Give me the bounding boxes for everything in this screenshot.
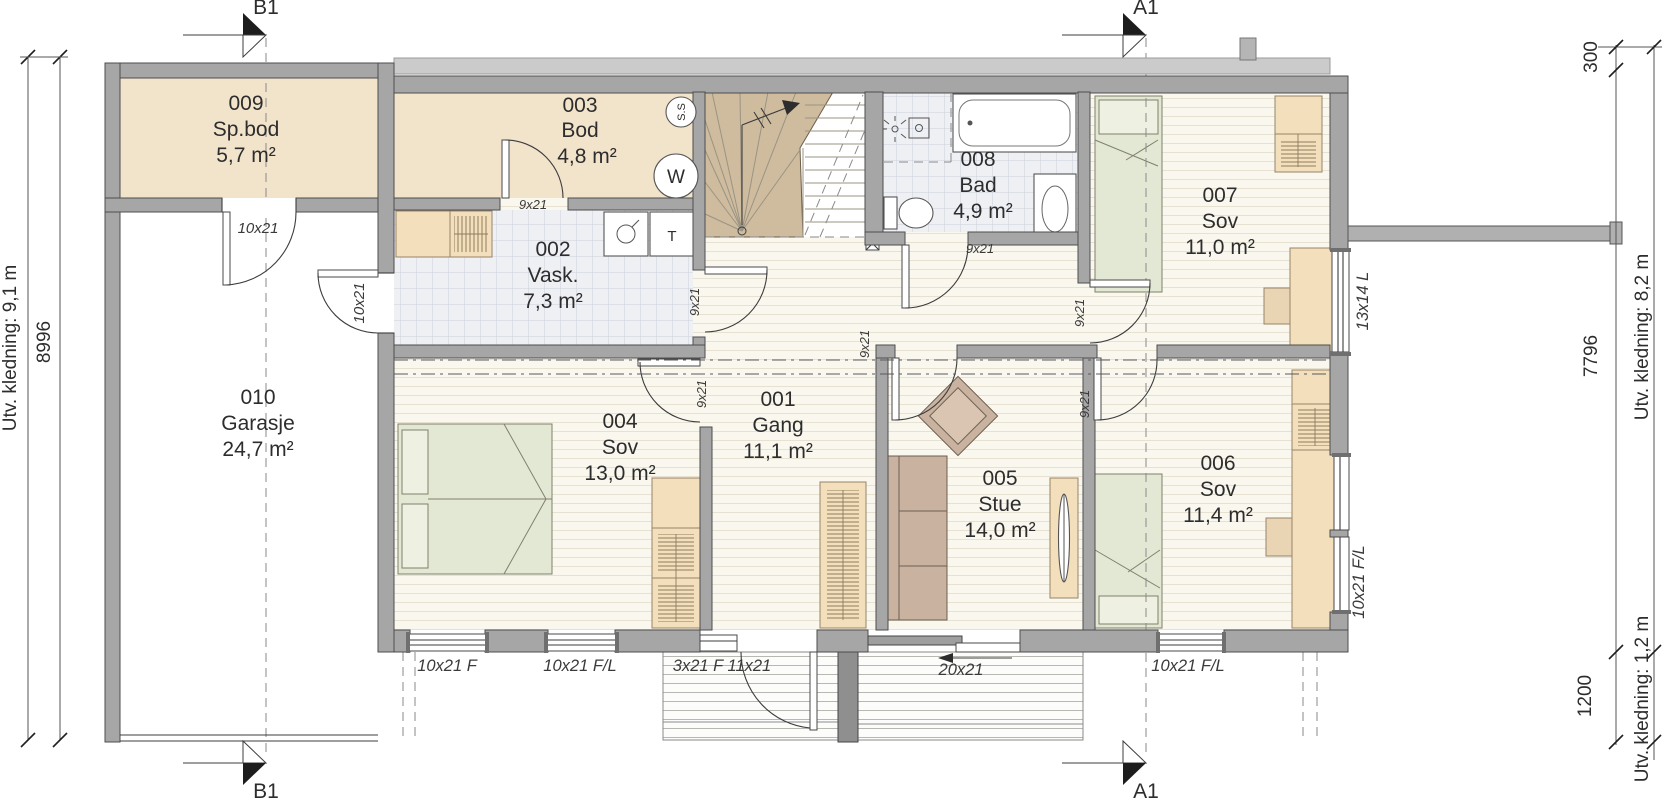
dryer: T: [650, 212, 694, 256]
dim-left: Utv. kledning: 9,1 m 8996: [0, 50, 68, 747]
svg-text:5,7 m²: 5,7 m²: [216, 144, 276, 167]
entrance-sidelight: [700, 635, 737, 651]
svg-text:Sov: Sov: [602, 436, 639, 459]
svg-text:Bod: Bod: [561, 119, 598, 142]
svg-text:003: 003: [562, 94, 597, 117]
dryer-label: T: [667, 228, 676, 245]
window-south-1: [406, 632, 489, 653]
svg-text:A1: A1: [1133, 0, 1159, 19]
wardrobe-gang: [820, 482, 866, 628]
door-label-garasje-vask: 10x21: [351, 283, 368, 324]
window-south-2: [544, 632, 619, 653]
bathtub: [953, 94, 1076, 152]
tv-bench-005: [1050, 478, 1078, 598]
window-east-bottom-2: [1332, 537, 1351, 614]
section-marker-a1-top: A1: [1062, 0, 1159, 57]
svg-text:002: 002: [535, 238, 570, 261]
svg-text:004: 004: [602, 410, 637, 433]
dresser-007: [1275, 96, 1322, 172]
svg-text:A1: A1: [1133, 780, 1159, 800]
svg-text:11,0 m²: 11,0 m²: [1185, 236, 1255, 259]
deck-post: [838, 646, 858, 742]
svg-text:Vask.: Vask.: [528, 264, 579, 287]
room-003-floor: [394, 92, 693, 198]
svg-text:Garasje: Garasje: [221, 412, 295, 435]
double-bed-004: [398, 424, 552, 574]
window-label-south-3: 10x21 F/L: [1151, 657, 1224, 675]
door-label-sov006: 9x21: [1077, 390, 1092, 418]
cabinet-002: [396, 211, 492, 257]
sliding-door-label: 20x21: [938, 661, 984, 679]
water-heater-label: W: [667, 167, 685, 188]
dim-right-cladding-lower: Utv. kledning: 1,2 m: [1632, 616, 1653, 783]
entrance-label: 3x21 F 11x21: [673, 657, 771, 675]
svg-text:010: 010: [240, 386, 275, 409]
window-label-east-bottom: 10x21 F/L: [1350, 545, 1368, 618]
dim-right: 300 7796 Utv. kledning: 8,2 m 1200 Utv. …: [1575, 40, 1662, 782]
ss-tank-label: S.S: [676, 103, 688, 121]
svg-text:005: 005: [982, 467, 1017, 490]
svg-text:11,1 m²: 11,1 m²: [743, 440, 813, 463]
svg-text:11,4 m²: 11,4 m²: [1183, 504, 1253, 527]
bed-006: [1095, 474, 1162, 628]
roof-overhang: [394, 58, 1330, 74]
svg-text:Sov: Sov: [1200, 478, 1237, 501]
window-east-top: [1330, 248, 1351, 356]
svg-text:B1: B1: [253, 0, 279, 19]
section-marker-a1-bottom: A1: [1062, 741, 1159, 800]
dim-left-cladding: Utv. kledning: 9,1 m: [0, 265, 21, 432]
svg-text:Sp.bod: Sp.bod: [213, 118, 280, 141]
svg-text:Gang: Gang: [752, 414, 803, 437]
door-label-bad: 9x21: [966, 241, 994, 256]
door-label-sov007: 9x21: [1072, 299, 1087, 327]
svg-text:001: 001: [760, 388, 795, 411]
svg-text:24,7 m²: 24,7 m²: [222, 438, 293, 461]
bed-007: [1095, 96, 1162, 292]
svg-text:4,8 m²: 4,8 m²: [557, 145, 617, 168]
toilet: [884, 197, 933, 229]
svg-text:4,9 m²: 4,9 m²: [953, 200, 1013, 223]
dim-right-offset: 300: [1581, 41, 1602, 73]
svg-text:007: 007: [1202, 184, 1237, 207]
svg-text:Sov: Sov: [1202, 210, 1239, 233]
dim-right-cladding-upper: Utv. kledning: 8,2 m: [1632, 254, 1653, 421]
window-label-south-1: 10x21 F: [417, 657, 478, 675]
svg-text:008: 008: [960, 148, 995, 171]
svg-text:Stue: Stue: [978, 493, 1021, 516]
door-label-sov004: 9x21: [694, 380, 709, 408]
svg-text:Bad: Bad: [959, 174, 996, 197]
svg-text:13,0 m²: 13,0 m²: [584, 462, 655, 485]
chair-006: [1266, 518, 1292, 556]
svg-text:B1: B1: [253, 780, 279, 800]
window-label-east-top: 13x14 L: [1354, 272, 1372, 331]
dim-right-height: 7796: [1581, 335, 1602, 377]
door-label-stue: 9x21: [857, 330, 872, 358]
svg-text:009: 009: [228, 92, 263, 115]
screen-wall: [1348, 226, 1610, 241]
window-east-bottom-1: [1332, 453, 1351, 530]
section-marker-b1-top: B1: [183, 0, 279, 57]
wardrobe-004: [652, 478, 700, 628]
window-label-south-2: 10x21 F/L: [543, 657, 616, 675]
svg-text:14,0 m²: 14,0 m²: [964, 519, 1035, 542]
vent-stub: [1240, 38, 1256, 60]
floor-plan-svg: T: [0, 0, 1670, 800]
washing-machine: [604, 212, 648, 256]
dim-right-lower: 1200: [1575, 675, 1596, 717]
dim-left-width: 8996: [34, 321, 55, 363]
svg-text:7,3 m²: 7,3 m²: [523, 290, 583, 313]
section-marker-b1-bottom: B1: [183, 741, 279, 800]
door-label-bod: 9x21: [519, 197, 547, 212]
door-label-vask: 9x21: [687, 288, 702, 316]
svg-text:006: 006: [1200, 452, 1235, 475]
chair-007: [1264, 288, 1290, 324]
door-label-spbod: 10x21: [238, 220, 279, 237]
window-south-3: [1156, 632, 1226, 653]
